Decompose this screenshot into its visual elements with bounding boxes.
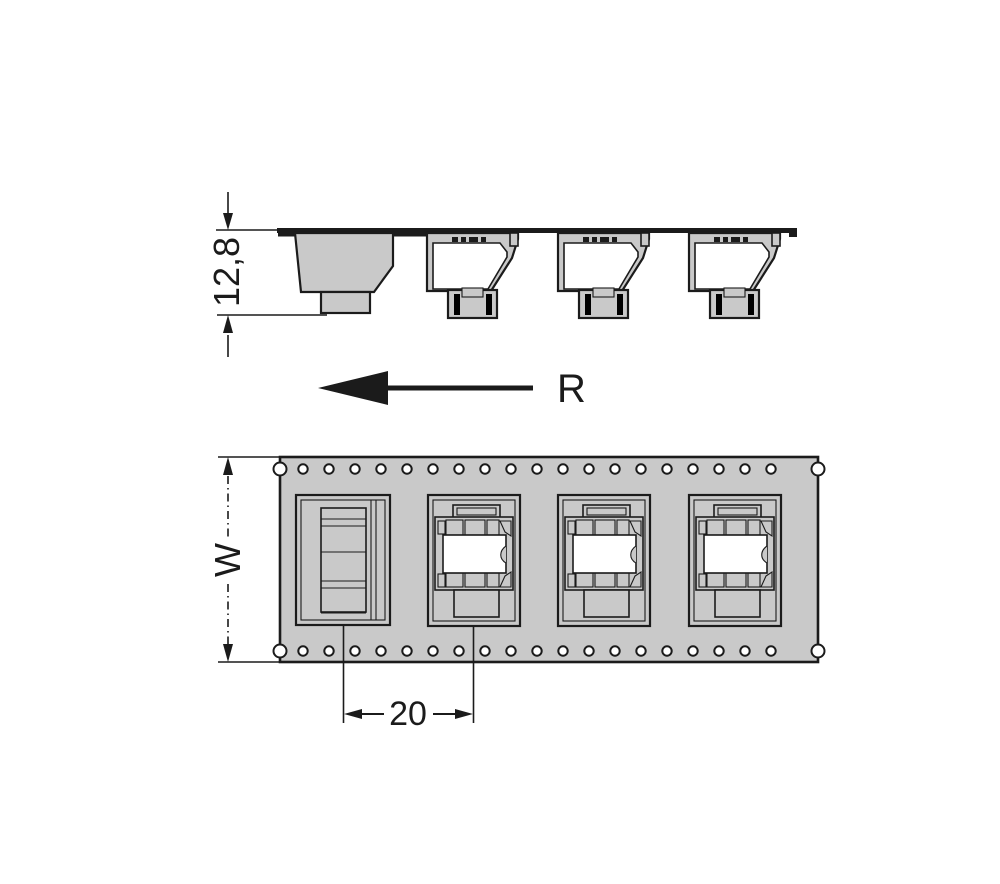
dimension-tape-width: W — [207, 457, 280, 662]
sprocket-hole — [454, 646, 463, 655]
sprocket-hole — [558, 646, 567, 655]
sprocket-hole — [402, 646, 411, 655]
sprocket-hole — [662, 646, 671, 655]
sprocket-hole — [714, 646, 723, 655]
tape-edge-notch — [274, 645, 287, 658]
drawing-canvas: 12,8 R — [0, 0, 1000, 884]
sprocket-hole — [532, 646, 541, 655]
component-side-outline-3 — [689, 233, 780, 318]
sprocket-hole — [428, 464, 437, 473]
component-side-outline-2 — [558, 233, 649, 318]
sprocket-hole — [298, 464, 307, 473]
sprocket-hole — [324, 646, 333, 655]
tape-edge-notch — [812, 463, 825, 476]
sprocket-hole — [506, 646, 515, 655]
sprocket-hole — [506, 464, 515, 473]
sprocket-hole — [636, 646, 645, 655]
sprocket-hole — [376, 646, 385, 655]
arrow-shaft — [386, 386, 533, 391]
sprocket-hole — [532, 464, 541, 473]
sprocket-hole — [376, 464, 385, 473]
sprocket-hole — [688, 464, 697, 473]
tape-edge-notch — [812, 645, 825, 658]
sprocket-hole — [480, 646, 489, 655]
height-dimension-label: 12,8 — [206, 237, 247, 307]
tape-and-reel-technical-drawing: 12,8 R — [0, 0, 1000, 884]
sprocket-hole — [350, 646, 359, 655]
sprocket-hole — [480, 464, 489, 473]
sprocket-hole — [610, 646, 619, 655]
carrier-tape-end-step — [789, 233, 797, 237]
direction-label: R — [557, 367, 586, 411]
sprocket-hole — [766, 464, 775, 473]
component-side-outline-1 — [427, 233, 518, 318]
sprocket-hole — [636, 464, 645, 473]
sprocket-hole — [766, 646, 775, 655]
reel-direction-arrow: R — [318, 367, 586, 411]
component-side-filled — [295, 233, 393, 313]
sprocket-hole — [584, 646, 593, 655]
arrowhead-left — [318, 371, 388, 405]
sprocket-hole — [740, 646, 749, 655]
sprocket-hole — [558, 464, 567, 473]
sprocket-hole — [610, 464, 619, 473]
sprocket-hole — [454, 464, 463, 473]
pocket-with-component-3 — [689, 495, 781, 626]
sprocket-hole — [402, 464, 411, 473]
pocket-with-component-1 — [428, 495, 520, 626]
pocket-pitch-label: 20 — [389, 695, 427, 733]
tape-width-label: W — [207, 543, 248, 577]
sprocket-hole — [688, 646, 697, 655]
pocket-with-component-2 — [558, 495, 650, 626]
sprocket-hole — [740, 464, 749, 473]
tape-edge-notch — [274, 463, 287, 476]
sprocket-hole — [350, 464, 359, 473]
top-view: W 20 — [207, 457, 825, 733]
sprocket-hole — [324, 464, 333, 473]
sprocket-hole — [298, 646, 307, 655]
sprocket-hole — [714, 464, 723, 473]
pocket-cavity — [296, 495, 390, 625]
side-view: 12,8 — [206, 192, 797, 357]
sprocket-hole — [662, 464, 671, 473]
sprocket-hole — [584, 464, 593, 473]
sprocket-hole — [428, 646, 437, 655]
